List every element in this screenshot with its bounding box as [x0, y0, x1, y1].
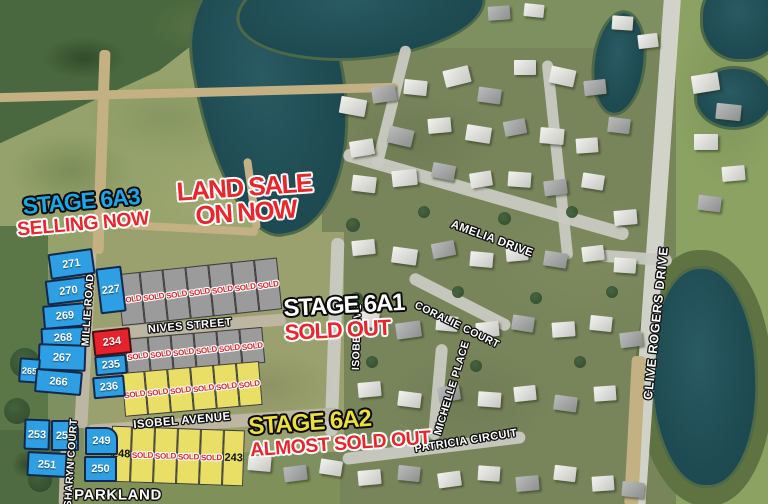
tree — [418, 206, 430, 218]
sold-label: SOLD — [241, 340, 263, 352]
sold-label: SOLD — [170, 384, 192, 396]
house-roof — [553, 394, 578, 412]
house-roof — [515, 475, 539, 492]
house-roof — [477, 86, 502, 104]
house-roof — [589, 315, 612, 332]
house-roof — [508, 171, 532, 188]
house-roof — [715, 103, 742, 122]
tree — [346, 218, 360, 232]
tree — [366, 356, 378, 368]
tree — [498, 212, 511, 225]
house-roof — [539, 127, 564, 145]
sold-lot: SOLD — [171, 333, 197, 371]
sold-label: SOLD — [124, 388, 146, 400]
sold-label: SOLD — [218, 342, 240, 354]
lot-227: 227 — [95, 266, 126, 315]
sold-lot: SOLD — [199, 429, 224, 486]
sold-lot: SOLD — [239, 327, 265, 365]
sold-label: SOLD — [211, 283, 233, 295]
house-roof — [351, 239, 375, 256]
house-roof — [581, 172, 605, 190]
house-roof — [721, 165, 745, 182]
house-roof — [511, 314, 535, 332]
house-roof — [552, 321, 576, 338]
house-roof — [553, 465, 577, 483]
tree — [452, 286, 464, 298]
sold-label: SOLD — [178, 452, 199, 461]
lot-236: 236 — [92, 375, 126, 400]
lot-234: 234 — [92, 327, 133, 357]
sold-lot: SOLD — [153, 427, 178, 484]
house-roof — [514, 60, 536, 75]
lot-235: 235 — [94, 354, 128, 377]
house-roof — [319, 458, 343, 476]
house-roof — [357, 469, 381, 486]
lot-250: 250 — [84, 456, 117, 482]
lot-243: 243 — [222, 430, 244, 487]
banner-stage-6a1: STAGE 6A1 SOLD OUT — [283, 291, 406, 343]
sold-label: SOLD — [257, 278, 279, 290]
tree — [470, 360, 482, 372]
sold-label: SOLD — [143, 290, 165, 302]
house-roof — [513, 385, 536, 402]
house-roof — [583, 79, 606, 96]
house-roof — [619, 331, 643, 349]
area-label-parkland: PARKLAND — [74, 487, 162, 504]
lot-249: 249 — [85, 427, 118, 455]
sold-lot: SOLD — [130, 426, 155, 483]
house-roof — [581, 245, 605, 263]
tree — [566, 206, 578, 218]
house-roof — [357, 381, 381, 398]
house-roof — [523, 3, 544, 18]
house-roof — [607, 117, 631, 135]
house-roof — [488, 5, 511, 21]
lot-253: 253 — [23, 419, 50, 451]
sold-label: SOLD — [150, 348, 172, 360]
sold-label: SOLD — [234, 281, 256, 293]
house-roof — [371, 84, 397, 103]
house-roof — [427, 117, 451, 134]
house-roof — [391, 169, 418, 188]
house-roof — [478, 391, 502, 408]
house-roof — [469, 251, 493, 268]
aerial-map: SOLD SOLD SOLD SOLD SOLD SOLD SOLD SOLD … — [0, 0, 768, 504]
house-roof — [543, 179, 568, 197]
house-roof — [637, 33, 659, 49]
lot-251: 251 — [26, 451, 67, 478]
stage-6a1-status: SOLD OUT — [284, 315, 406, 343]
house-roof — [621, 481, 644, 498]
house-roof — [283, 465, 308, 483]
house-roof — [437, 470, 462, 488]
lot-266: 266 — [34, 368, 83, 396]
sold-lot: SOLD — [176, 428, 201, 485]
sold-label: SOLD — [166, 288, 188, 300]
house-roof — [594, 385, 617, 401]
house-roof — [592, 475, 615, 491]
sold-lot: SOLD — [216, 329, 242, 367]
lot-number: 243 — [224, 452, 243, 465]
house-roof — [576, 137, 599, 153]
sold-label: SOLD — [238, 378, 260, 390]
house-roof — [614, 257, 637, 273]
sold-label: SOLD — [196, 344, 218, 356]
tree — [530, 292, 542, 304]
sold-label: SOLD — [193, 382, 215, 394]
house-roof — [697, 195, 722, 213]
house-roof — [694, 134, 718, 150]
sold-label: SOLD — [155, 451, 176, 460]
sold-label: SOLD — [147, 386, 169, 398]
house-roof — [351, 175, 377, 194]
sold-label: SOLD — [173, 346, 195, 358]
house-roof — [613, 209, 637, 226]
house-roof — [612, 15, 634, 30]
house-roof — [478, 465, 501, 481]
tree — [574, 356, 586, 368]
sold-label: SOLD — [132, 450, 153, 459]
sold-label: SOLD — [215, 380, 237, 392]
house-roof — [403, 79, 427, 96]
lot-267: 267 — [38, 343, 87, 372]
sold-lot: SOLD — [148, 335, 174, 373]
house-roof — [397, 465, 420, 482]
house-roof — [391, 246, 418, 265]
sold-lot: SOLD — [236, 361, 263, 407]
tree — [606, 286, 618, 298]
lot-row-isobel-south: 248 SOLD SOLD SOLD SOLD 243 — [110, 426, 242, 487]
sold-label: SOLD — [189, 286, 211, 298]
sold-lot: SOLD — [194, 331, 220, 369]
sold-label: SOLD — [201, 453, 222, 462]
